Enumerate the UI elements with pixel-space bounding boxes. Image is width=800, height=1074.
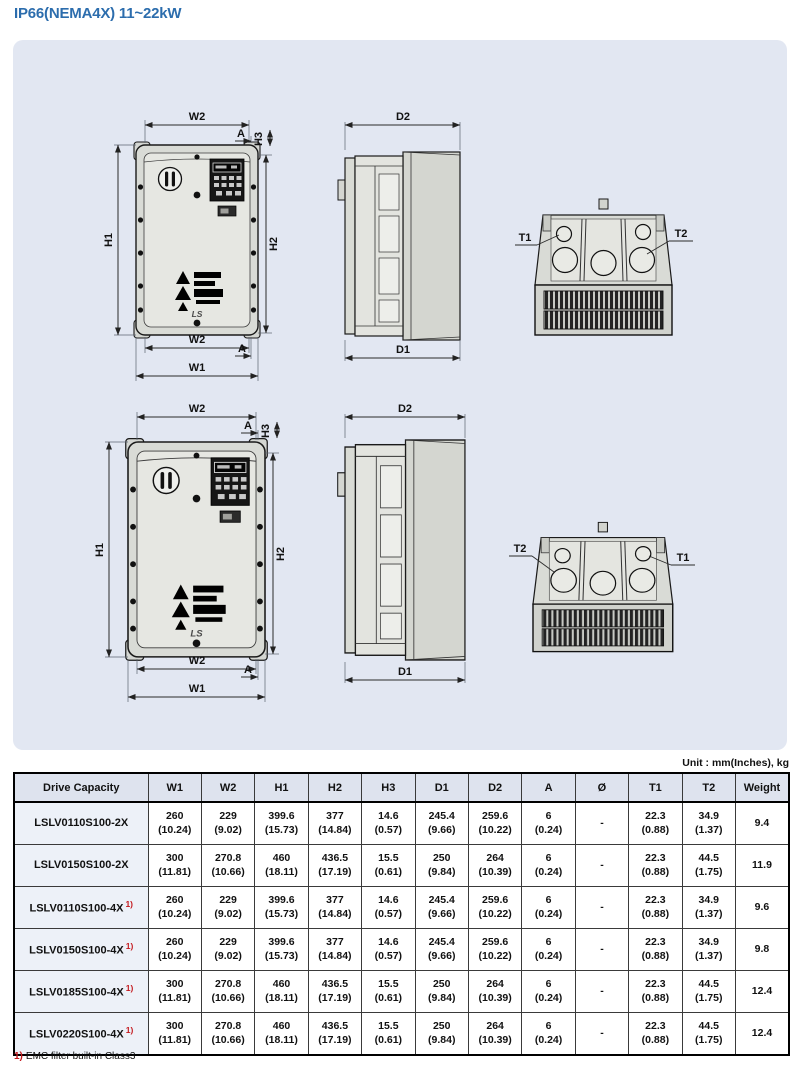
front-view-1 bbox=[134, 142, 260, 338]
dim-cell: 14.6 (0.57) bbox=[362, 887, 415, 929]
dim-cell: 14.6 (0.57) bbox=[362, 802, 415, 845]
dim-cell: 14.6 (0.57) bbox=[362, 929, 415, 971]
dim-cell: - bbox=[575, 929, 628, 971]
bottom-view-2 bbox=[533, 522, 673, 651]
table-header-row: Drive Capacity W1 W2 H1 H2 H3 D1 D2 A Ø … bbox=[14, 773, 789, 802]
dim-cell: 22.3 (0.88) bbox=[629, 845, 682, 887]
table-row: LSLV0150S100-4X1)260 (10.24)229 (9.02)39… bbox=[14, 929, 789, 971]
dim-cell: 264 (10.39) bbox=[468, 1013, 521, 1056]
dim-label-d2: D2 bbox=[396, 111, 410, 123]
dim-label-d1: D1 bbox=[396, 344, 410, 356]
unit-note: Unit : mm(Inches), kg bbox=[682, 757, 789, 769]
model-cell: LSLV0110S100-4X1) bbox=[14, 887, 148, 929]
dim-cell: 259.6 (10.22) bbox=[468, 802, 521, 845]
footnote-text: EMC filter built-in Class3 bbox=[26, 1051, 135, 1062]
dim-cell: 6 (0.24) bbox=[522, 887, 575, 929]
dim-cell: 436.5 (17.19) bbox=[308, 845, 361, 887]
dim-cell: 9.4 bbox=[735, 802, 789, 845]
dim-cell: 260 (10.24) bbox=[148, 802, 201, 845]
dim-cell: - bbox=[575, 887, 628, 929]
dim-cell: 399.6 (15.73) bbox=[255, 929, 308, 971]
dim-label-h1: H1 bbox=[103, 233, 115, 247]
dim-cell: 460 (18.11) bbox=[255, 1013, 308, 1056]
dim-cell: 44.5 (1.75) bbox=[682, 1013, 735, 1056]
dimension-drawings: LS bbox=[13, 40, 787, 750]
dim-cell: 250 (9.84) bbox=[415, 1013, 468, 1056]
dim-cell: 22.3 (0.88) bbox=[629, 802, 682, 845]
dim-label-w2: W2 bbox=[189, 111, 206, 123]
dim-label-d1: D1 bbox=[398, 666, 412, 678]
dim-cell: 460 (18.11) bbox=[255, 971, 308, 1013]
dim-cell: 377 (14.84) bbox=[308, 802, 361, 845]
dim-cell: 12.4 bbox=[735, 971, 789, 1013]
dim-label-t1: T1 bbox=[677, 552, 690, 564]
dim-cell: 34.9 (1.37) bbox=[682, 929, 735, 971]
datasheet-page: IP66(NEMA4X) 11~22kW bbox=[0, 0, 800, 1074]
dim-label-w2: W2 bbox=[189, 334, 206, 346]
dim-label-d2: D2 bbox=[398, 403, 412, 415]
row-footnote-marker: 1) bbox=[125, 899, 133, 909]
model-cell: LSLV0110S100-2X bbox=[14, 802, 148, 845]
dim-label-w1: W1 bbox=[189, 362, 206, 374]
table-row: LSLV0185S100-4X1)300 (11.81)270.8 (10.66… bbox=[14, 971, 789, 1013]
dim-cell: 259.6 (10.22) bbox=[468, 887, 521, 929]
dim-cell: 250 (9.84) bbox=[415, 971, 468, 1013]
dim-cell: 300 (11.81) bbox=[148, 845, 201, 887]
col-header-h1: H1 bbox=[255, 773, 308, 802]
dim-cell: 270.8 (10.66) bbox=[201, 1013, 254, 1056]
dim-cell: 229 (9.02) bbox=[201, 802, 254, 845]
col-header-w1: W1 bbox=[148, 773, 201, 802]
dim-cell: 377 (14.84) bbox=[308, 929, 361, 971]
dim-cell: 15.5 (0.61) bbox=[362, 971, 415, 1013]
dim-cell: 399.6 (15.73) bbox=[255, 887, 308, 929]
dim-cell: 22.3 (0.88) bbox=[629, 1013, 682, 1056]
dim-cell: 22.3 (0.88) bbox=[629, 929, 682, 971]
dim-label-a: A bbox=[238, 343, 246, 355]
dim-cell: 6 (0.24) bbox=[522, 929, 575, 971]
model-cell: LSLV0150S100-2X bbox=[14, 845, 148, 887]
col-header-w2: W2 bbox=[201, 773, 254, 802]
dim-cell: 245.4 (9.66) bbox=[415, 887, 468, 929]
row-footnote-marker: 1) bbox=[126, 983, 134, 993]
dim-cell: 229 (9.02) bbox=[201, 929, 254, 971]
col-header-weight: Weight bbox=[735, 773, 789, 802]
dim-cell: 34.9 (1.37) bbox=[682, 887, 735, 929]
dim-label-w1: W1 bbox=[189, 683, 206, 695]
dim-label-a: A bbox=[237, 128, 245, 140]
dim-cell: 460 (18.11) bbox=[255, 845, 308, 887]
front-view-2 bbox=[126, 439, 267, 661]
page-title: IP66(NEMA4X) 11~22kW bbox=[14, 5, 181, 22]
col-header-h2: H2 bbox=[308, 773, 361, 802]
dim-label-w2: W2 bbox=[189, 403, 206, 415]
dim-label-a: A bbox=[244, 664, 252, 676]
col-header-a: A bbox=[522, 773, 575, 802]
table-row: LSLV0110S100-2X260 (10.24)229 (9.02)399.… bbox=[14, 802, 789, 845]
dim-cell: 6 (0.24) bbox=[522, 1013, 575, 1056]
dim-cell: - bbox=[575, 1013, 628, 1056]
dim-cell: 250 (9.84) bbox=[415, 845, 468, 887]
dim-cell: 270.8 (10.66) bbox=[201, 971, 254, 1013]
dim-cell: 300 (11.81) bbox=[148, 1013, 201, 1056]
dim-cell: 44.5 (1.75) bbox=[682, 845, 735, 887]
bottom-view-1 bbox=[535, 199, 672, 335]
dim-cell: 399.6 (15.73) bbox=[255, 802, 308, 845]
dim-label-t1: T1 bbox=[519, 232, 532, 244]
col-header-d2: D2 bbox=[468, 773, 521, 802]
dim-cell: - bbox=[575, 802, 628, 845]
dimension-diagrams-panel: LS bbox=[13, 40, 787, 750]
col-header-d1: D1 bbox=[415, 773, 468, 802]
dim-cell: 15.5 (0.61) bbox=[362, 845, 415, 887]
table-row: LSLV0150S100-2X300 (11.81)270.8 (10.66)4… bbox=[14, 845, 789, 887]
row-footnote-marker: 1) bbox=[126, 1025, 134, 1035]
dim-cell: 12.4 bbox=[735, 1013, 789, 1056]
col-header-h3: H3 bbox=[362, 773, 415, 802]
dim-cell: 300 (11.81) bbox=[148, 971, 201, 1013]
dim-cell: 22.3 (0.88) bbox=[629, 887, 682, 929]
dim-cell: 15.5 (0.61) bbox=[362, 1013, 415, 1056]
dim-label-h3: H3 bbox=[260, 424, 272, 438]
dim-cell: 259.6 (10.22) bbox=[468, 929, 521, 971]
dim-cell: 436.5 (17.19) bbox=[308, 971, 361, 1013]
row-footnote-marker: 1) bbox=[126, 941, 134, 951]
col-header-t2: T2 bbox=[682, 773, 735, 802]
col-header-diameter: Ø bbox=[575, 773, 628, 802]
dim-label-t2: T2 bbox=[514, 543, 527, 555]
dim-cell: 9.6 bbox=[735, 887, 789, 929]
dim-cell: 11.9 bbox=[735, 845, 789, 887]
dim-cell: 245.4 (9.66) bbox=[415, 802, 468, 845]
dim-label-w2: W2 bbox=[189, 655, 206, 667]
dim-cell: 6 (0.24) bbox=[522, 802, 575, 845]
model-cell: LSLV0150S100-4X1) bbox=[14, 929, 148, 971]
dim-cell: 264 (10.39) bbox=[468, 971, 521, 1013]
dim-label-h3: H3 bbox=[253, 132, 265, 146]
dim-cell: 264 (10.39) bbox=[468, 845, 521, 887]
footnote-marker: 1) bbox=[14, 1051, 23, 1062]
model-cell: LSLV0185S100-4X1) bbox=[14, 971, 148, 1013]
dim-cell: 22.3 (0.88) bbox=[629, 971, 682, 1013]
side-view-2 bbox=[338, 440, 465, 660]
dimension-table: Drive Capacity W1 W2 H1 H2 H3 D1 D2 A Ø … bbox=[13, 772, 790, 1056]
dim-cell: 9.8 bbox=[735, 929, 789, 971]
dim-cell: 44.5 (1.75) bbox=[682, 971, 735, 1013]
dim-cell: 436.5 (17.19) bbox=[308, 1013, 361, 1056]
table-row: LSLV0110S100-4X1)260 (10.24)229 (9.02)39… bbox=[14, 887, 789, 929]
dim-cell: 377 (14.84) bbox=[308, 887, 361, 929]
dim-cell: 6 (0.24) bbox=[522, 971, 575, 1013]
dim-cell: 229 (9.02) bbox=[201, 887, 254, 929]
dim-cell: 6 (0.24) bbox=[522, 845, 575, 887]
dim-cell: - bbox=[575, 971, 628, 1013]
dim-label-h1: H1 bbox=[94, 543, 106, 557]
dim-label-h2: H2 bbox=[275, 547, 287, 561]
side-view-1 bbox=[338, 152, 460, 340]
dim-cell: 260 (10.24) bbox=[148, 887, 201, 929]
footnote: 1)EMC filter built-in Class3 bbox=[14, 1051, 135, 1062]
dim-cell: - bbox=[575, 845, 628, 887]
col-header-drive-capacity: Drive Capacity bbox=[14, 773, 148, 802]
dim-cell: 260 (10.24) bbox=[148, 929, 201, 971]
table-row: LSLV0220S100-4X1)300 (11.81)270.8 (10.66… bbox=[14, 1013, 789, 1056]
model-cell: LSLV0220S100-4X1) bbox=[14, 1013, 148, 1056]
dim-label-a: A bbox=[244, 420, 252, 432]
dim-cell: 34.9 (1.37) bbox=[682, 802, 735, 845]
col-header-t1: T1 bbox=[629, 773, 682, 802]
dim-label-h2: H2 bbox=[268, 237, 280, 251]
dim-cell: 245.4 (9.66) bbox=[415, 929, 468, 971]
dim-cell: 270.8 (10.66) bbox=[201, 845, 254, 887]
dim-label-t2: T2 bbox=[675, 228, 688, 240]
